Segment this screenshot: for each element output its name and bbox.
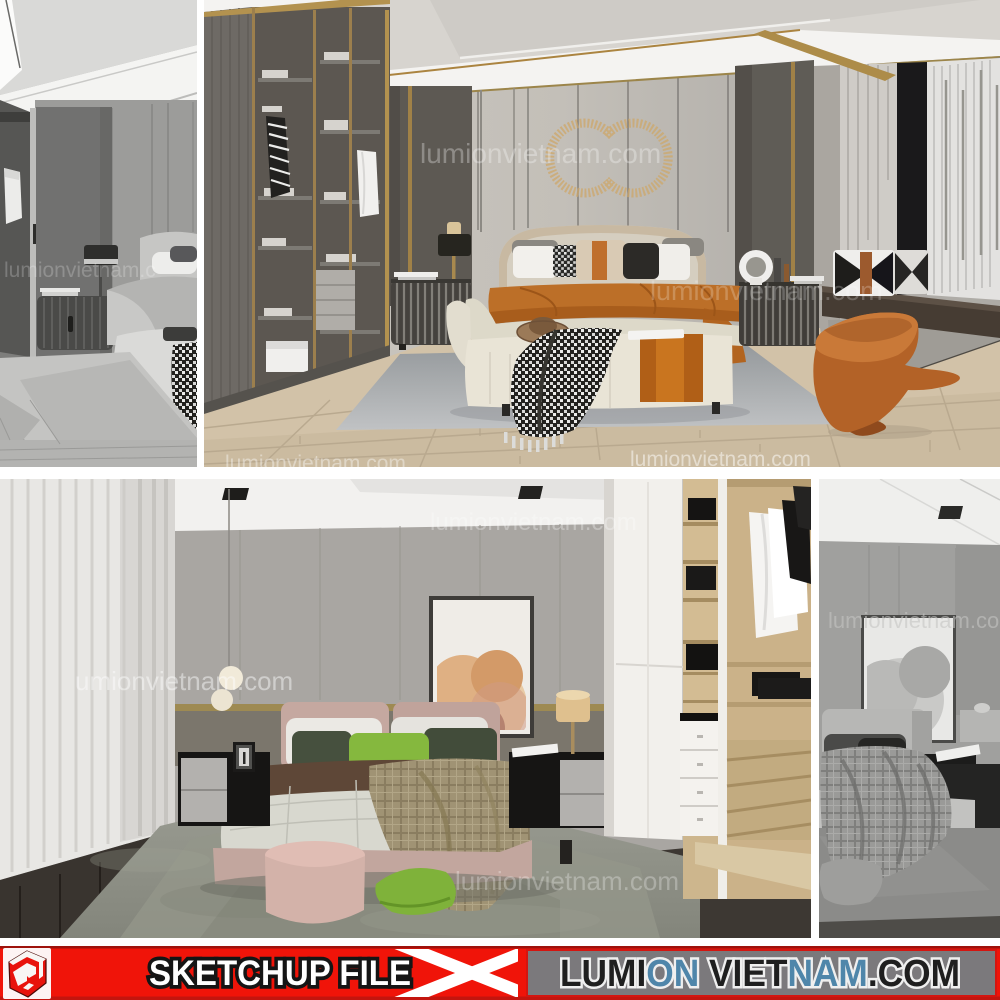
- svg-text:lumionvietnam.com: lumionvietnam.com: [650, 276, 883, 306]
- svg-text:lumionvietnam.com: lumionvietnam.com: [420, 138, 661, 169]
- svg-text:lumionvietnam.com: lumionvietnam.com: [430, 509, 637, 536]
- svg-text:lumionvietnam.c: lumionvietnam.c: [4, 259, 156, 282]
- svg-text:umionvietnam.com: umionvietnam.com: [75, 666, 293, 696]
- svg-text:lumionvietnam.com: lumionvietnam.com: [828, 608, 1000, 633]
- svg-text:LUMION VIETNAM.COM: LUMION VIETNAM.COM: [560, 953, 960, 995]
- svg-text:lumionvietnam.com: lumionvietnam.com: [455, 866, 679, 896]
- svg-text:SKETCHUP FILE: SKETCHUP FILE: [149, 954, 411, 993]
